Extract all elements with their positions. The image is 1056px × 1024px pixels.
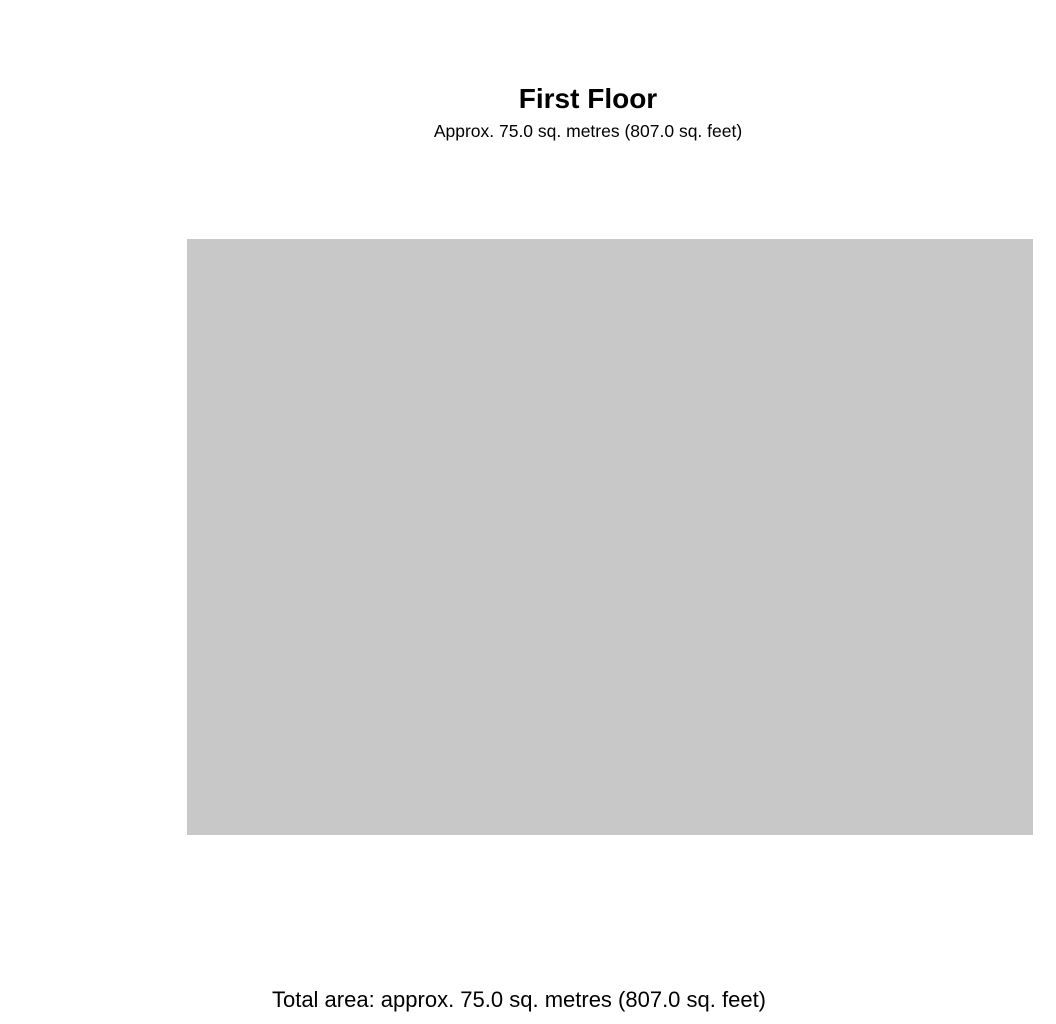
svg-text:Total area: approx. 75.0 sq. m: Total area: approx. 75.0 sq. metres (807…: [272, 987, 766, 1012]
svg-text:Approx. 75.0 sq. metres (807.0: Approx. 75.0 sq. metres (807.0 sq. feet): [434, 121, 742, 141]
svg-text:First Floor: First Floor: [519, 83, 658, 114]
